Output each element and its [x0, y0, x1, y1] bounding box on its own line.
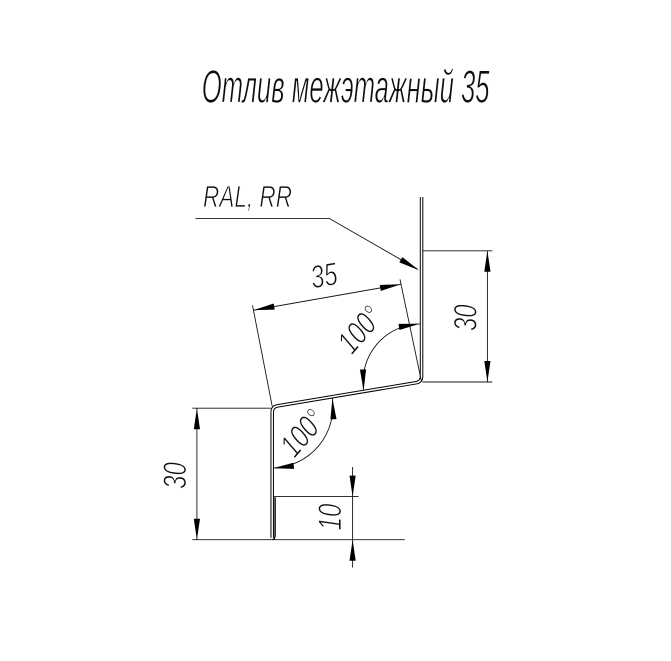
svg-text:RAL, RR: RAL, RR: [203, 178, 292, 213]
svg-text:30: 30: [156, 462, 192, 489]
svg-text:30: 30: [447, 304, 483, 331]
svg-text:10: 10: [312, 503, 348, 530]
svg-text:Отлив межэтажный 35: Отлив межэтажный 35: [202, 60, 490, 112]
